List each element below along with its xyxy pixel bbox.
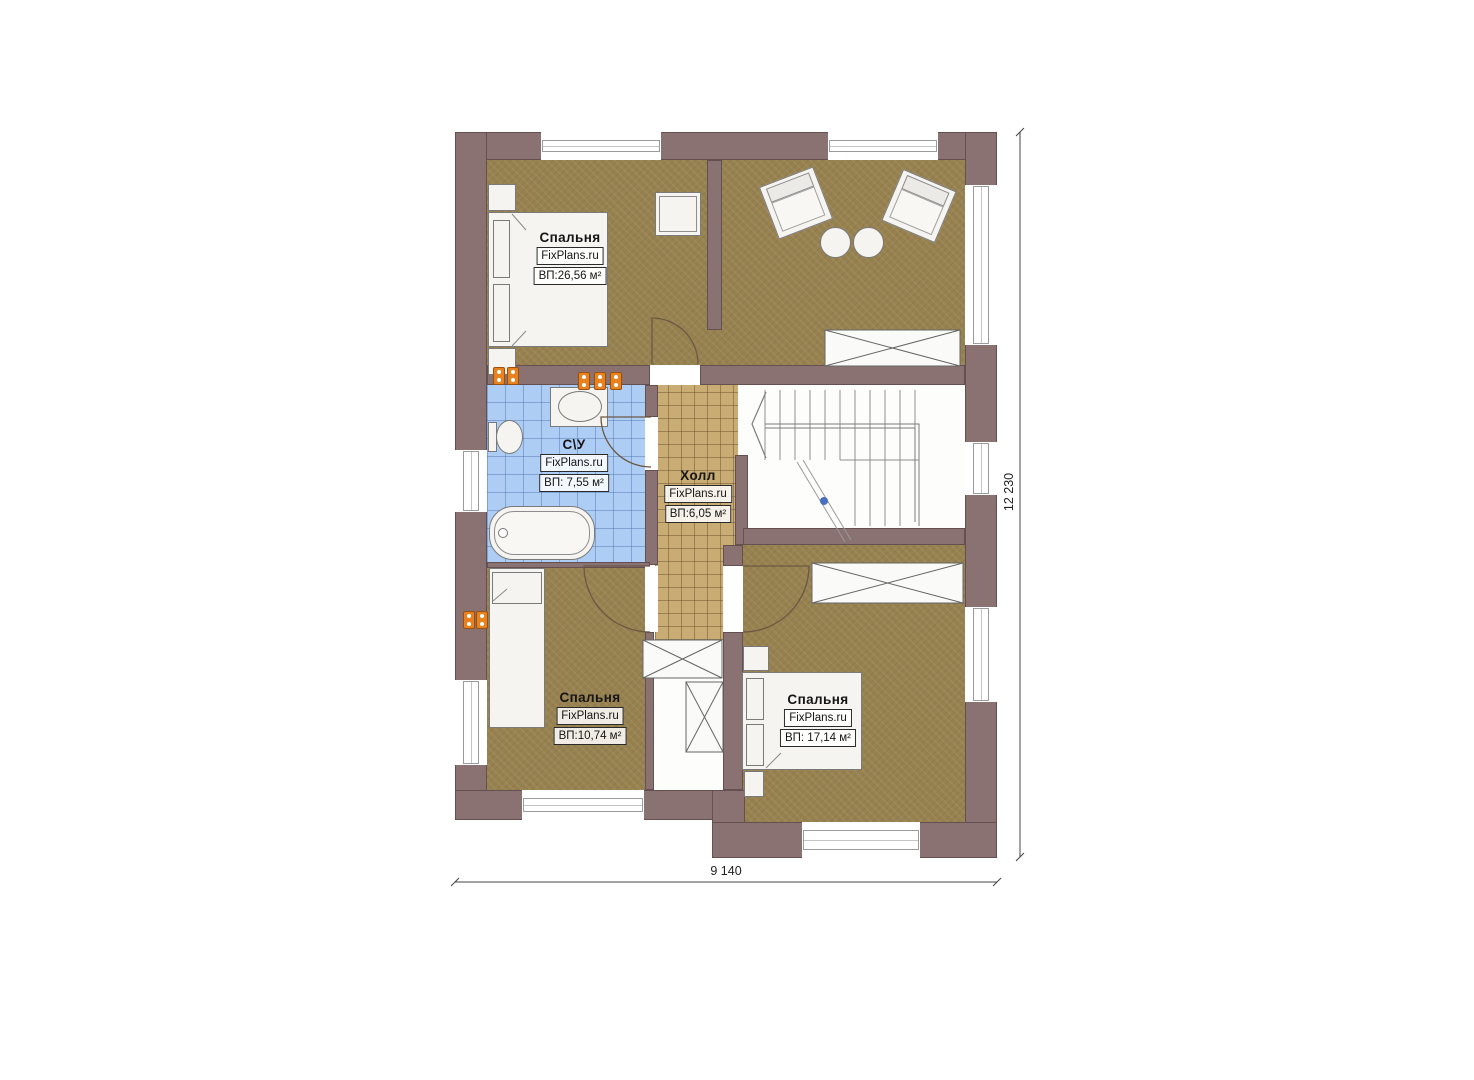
window-right-1 xyxy=(965,185,997,345)
window-left-bathroom xyxy=(455,450,487,512)
desk-top xyxy=(659,196,697,232)
room-name: Холл xyxy=(680,468,716,483)
room-label-hall: Холл FixPlans.ru ВП:6,05 м² xyxy=(664,468,732,523)
toilet-bowl xyxy=(496,420,523,454)
side-table xyxy=(820,227,851,258)
door-opening-bedroom-top xyxy=(650,365,700,385)
room-name: Спальня xyxy=(539,230,600,245)
room-area: ВП:26,56 м² xyxy=(534,267,607,285)
room-brand: FixPlans.ru xyxy=(784,709,852,727)
bathtub xyxy=(489,506,595,560)
wall-light-icon xyxy=(493,367,505,385)
room-label-bathroom: С\У FixPlans.ru ВП: 7,55 м² xyxy=(539,437,609,492)
room-label-bedroom-bottom-left: Спальня FixPlans.ru ВП:10,74 м² xyxy=(554,690,627,745)
wall-bathroom-right-upper xyxy=(645,385,658,417)
door-opening-bedroom-bottom-left xyxy=(645,566,658,632)
room-area: ВП:10,74 м² xyxy=(554,727,627,745)
wall-light-icon xyxy=(463,611,475,629)
window-right-bedroom xyxy=(965,607,997,702)
pillow xyxy=(746,724,764,766)
wall-bedroom3-left-lower xyxy=(723,632,743,790)
nightstand xyxy=(743,646,769,671)
door-opening-bedroom-bottom-right xyxy=(723,566,743,632)
wall-bedroom3-left-upper xyxy=(723,545,743,566)
room-label-bedroom-bottom-right: Спальня FixPlans.ru ВП: 17,14 м² xyxy=(780,692,856,747)
dimension-width: 9 140 xyxy=(656,864,796,878)
room-brand: FixPlans.ru xyxy=(536,247,604,265)
bathtub-inner xyxy=(494,511,590,555)
bathtub-drain xyxy=(498,528,508,538)
wall-light-icon xyxy=(507,367,519,385)
dimension-height: 12 230 xyxy=(1002,473,1016,511)
room-area: ВП: 17,14 м² xyxy=(780,729,856,747)
room-name: Спальня xyxy=(787,692,848,707)
window-bottom-left xyxy=(522,790,644,820)
window-right-stairs xyxy=(965,442,997,495)
nightstand xyxy=(744,771,764,797)
room-brand: FixPlans.ru xyxy=(540,454,608,472)
window-top-1 xyxy=(541,132,661,160)
room-name: Спальня xyxy=(559,690,620,705)
floor-stairwell xyxy=(738,385,965,528)
floor-closet-nook xyxy=(645,640,725,790)
room-brand: FixPlans.ru xyxy=(556,707,624,725)
pillow xyxy=(746,678,764,720)
sink-basin xyxy=(558,391,602,422)
room-area: ВП:6,05 м² xyxy=(665,505,731,523)
pillow xyxy=(492,572,542,604)
wall-light-icon xyxy=(476,611,488,629)
wall-partition-top-rooms xyxy=(707,160,722,330)
room-label-bedroom-top: Спальня FixPlans.ru ВП:26,56 м² xyxy=(534,230,607,285)
wall-nook-left xyxy=(645,632,654,790)
wall-bedroom3-top xyxy=(743,528,965,545)
window-bottom-right xyxy=(802,822,920,858)
pillow xyxy=(493,220,510,278)
door-opening-bathroom xyxy=(645,417,658,470)
room-name: С\У xyxy=(562,437,585,452)
side-table xyxy=(853,227,884,258)
wall-light-icon xyxy=(578,372,590,390)
window-top-2 xyxy=(828,132,938,160)
pillow xyxy=(493,284,510,342)
floor-plan-canvas: Спальня FixPlans.ru ВП:26,56 м² С\У FixP… xyxy=(0,0,1474,1080)
room-brand: FixPlans.ru xyxy=(664,485,732,503)
window-left-bedroom xyxy=(455,680,487,765)
desk xyxy=(655,192,701,236)
wall-light-icon xyxy=(610,372,622,390)
wall-bathroom-right-lower xyxy=(645,470,658,565)
wall-mid-horizontal-right xyxy=(700,365,965,385)
room-area: ВП: 7,55 м² xyxy=(539,474,609,492)
wall-light-icon xyxy=(594,372,606,390)
nightstand xyxy=(488,184,516,211)
